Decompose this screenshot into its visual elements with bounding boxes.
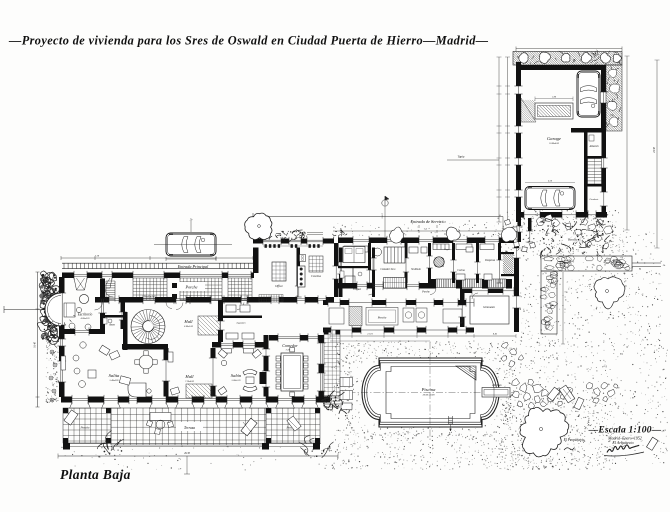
svg-text:Vestíbulo: Vestíbulo — [411, 268, 421, 271]
svg-text:Cocina: Cocina — [457, 269, 465, 272]
svg-text:Hall: Hall — [183, 319, 193, 324]
svg-text:Comedor Serv.: Comedor Serv. — [380, 268, 396, 271]
svg-text:5.60x5.20: 5.60x5.20 — [232, 380, 242, 382]
svg-text:20.00 x 8.00: 20.00 x 8.00 — [423, 393, 436, 396]
svg-text:Almacén: Almacén — [588, 145, 599, 148]
svg-text:Comedor: Comedor — [282, 343, 298, 348]
svg-text:Despensa: Despensa — [484, 259, 496, 262]
svg-text:El Propietario: El Propietario — [563, 438, 585, 442]
svg-text:Entrada de Servicio: Entrada de Servicio — [409, 219, 446, 224]
svg-text:7.20x6.00: 7.20x6.00 — [185, 381, 195, 383]
svg-text:26.30: 26.30 — [184, 452, 191, 455]
svg-text:Escritorio: Escritorio — [77, 313, 93, 317]
svg-text:—Proyecto de vivienda para los: —Proyecto de vivienda para los Sres de O… — [8, 34, 489, 48]
svg-text:Piscina: Piscina — [421, 387, 436, 392]
svg-text:Tapia: Tapia — [458, 155, 465, 159]
svg-text:Terraza: Terraza — [184, 426, 195, 430]
svg-text:Porche: Porche — [377, 316, 387, 320]
svg-text:Hall: Hall — [184, 374, 194, 379]
svg-text:Fogones: Fogones — [443, 249, 452, 251]
svg-text:Vestibulo: Vestibulo — [144, 296, 155, 299]
svg-text:Gimnasio: Gimnasio — [483, 305, 495, 309]
svg-text:Aseo: Aseo — [108, 323, 115, 327]
svg-text:Planta Baja: Planta Baja — [60, 467, 131, 482]
svg-text:4.60x4.20: 4.60x4.20 — [81, 317, 91, 320]
svg-text:10.00x6.00: 10.00x6.00 — [549, 143, 560, 145]
svg-text:21.10: 21.10 — [367, 333, 373, 336]
svg-text:Office: Office — [275, 284, 283, 288]
svg-text:Salita: Salita — [109, 373, 120, 378]
svg-text:Salón: Salón — [231, 373, 242, 378]
svg-text:Combust.: Combust. — [589, 198, 599, 201]
svg-text:Cocina: Cocina — [311, 274, 321, 278]
svg-text:6.00x5.00: 6.00x5.00 — [184, 326, 194, 328]
svg-text:Garage: Garage — [547, 136, 561, 141]
svg-text:El Arquitecto: El Arquitecto — [611, 440, 633, 445]
svg-text:—Escala 1:100—: —Escala 1:100— — [588, 426, 662, 436]
svg-text:Entrada Principal: Entrada Principal — [177, 264, 209, 269]
svg-text:Porche: Porche — [185, 285, 198, 290]
svg-text:Juguetero: Juguetero — [236, 322, 246, 325]
svg-text:Duchas: Duchas — [491, 383, 502, 387]
svg-text:Porche: Porche — [79, 426, 90, 430]
svg-text:Rocalla: Rocalla — [567, 239, 577, 242]
svg-text:16.40: 16.40 — [34, 341, 37, 348]
svg-text:23.50: 23.50 — [653, 146, 656, 153]
svg-text:Porche: Porche — [421, 291, 430, 294]
svg-text:5.40x4.90: 5.40x4.90 — [110, 379, 120, 382]
